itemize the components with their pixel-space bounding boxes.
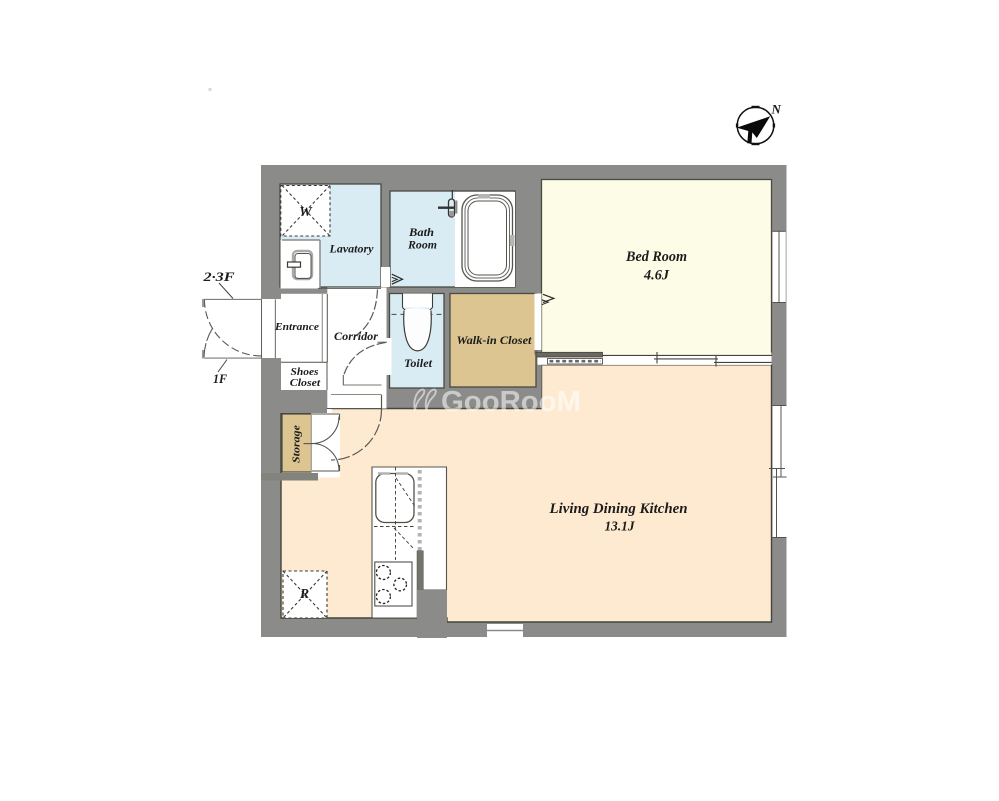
svg-text:Toilet: Toilet [404,358,433,370]
svg-text:Corridor: Corridor [334,331,379,343]
svg-text:Storage: Storage [292,424,303,463]
svg-text:2·3F: 2·3F [202,269,235,284]
svg-text:1F: 1F [213,371,227,386]
svg-text:R: R [299,586,309,601]
svg-text:N: N [771,102,782,117]
svg-text:Living Dining Kitchen: Living Dining Kitchen [548,501,687,517]
svg-text:Closet: Closet [290,378,322,389]
svg-text:W: W [299,205,313,220]
svg-text:Lavatory: Lavatory [328,244,374,256]
svg-text:4.6J: 4.6J [643,268,670,284]
svg-text:Walk-in Closet: Walk-in Closet [457,335,533,347]
svg-text:Room: Room [407,238,437,252]
svg-text:GooRooM: GooRooM [441,386,581,418]
svg-text:Entrance: Entrance [274,321,319,333]
svg-text:Bed Room: Bed Room [625,249,687,265]
svg-text:13.1J: 13.1J [605,520,636,535]
svg-text:Shoes: Shoes [291,367,319,378]
